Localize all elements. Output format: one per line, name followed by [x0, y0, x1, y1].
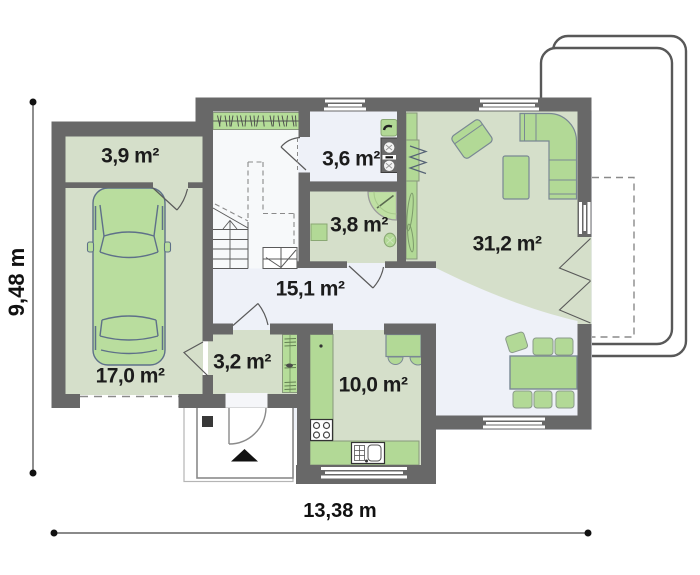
svg-text:3,8 m²: 3,8 m²	[330, 214, 388, 237]
svg-text:9,48 m: 9,48 m	[4, 248, 29, 317]
svg-text:15,1 m²: 15,1 m²	[276, 278, 345, 301]
svg-text:3,9 m²: 3,9 m²	[101, 145, 159, 168]
svg-text:3,6 m²: 3,6 m²	[322, 148, 380, 171]
svg-text:17,0 m²: 17,0 m²	[96, 365, 165, 388]
svg-text:31,2 m²: 31,2 m²	[473, 233, 542, 256]
svg-text:10,0 m²: 10,0 m²	[339, 374, 408, 397]
svg-text:3,2 m²: 3,2 m²	[213, 351, 271, 374]
svg-text:13,38 m: 13,38 m	[303, 500, 376, 522]
